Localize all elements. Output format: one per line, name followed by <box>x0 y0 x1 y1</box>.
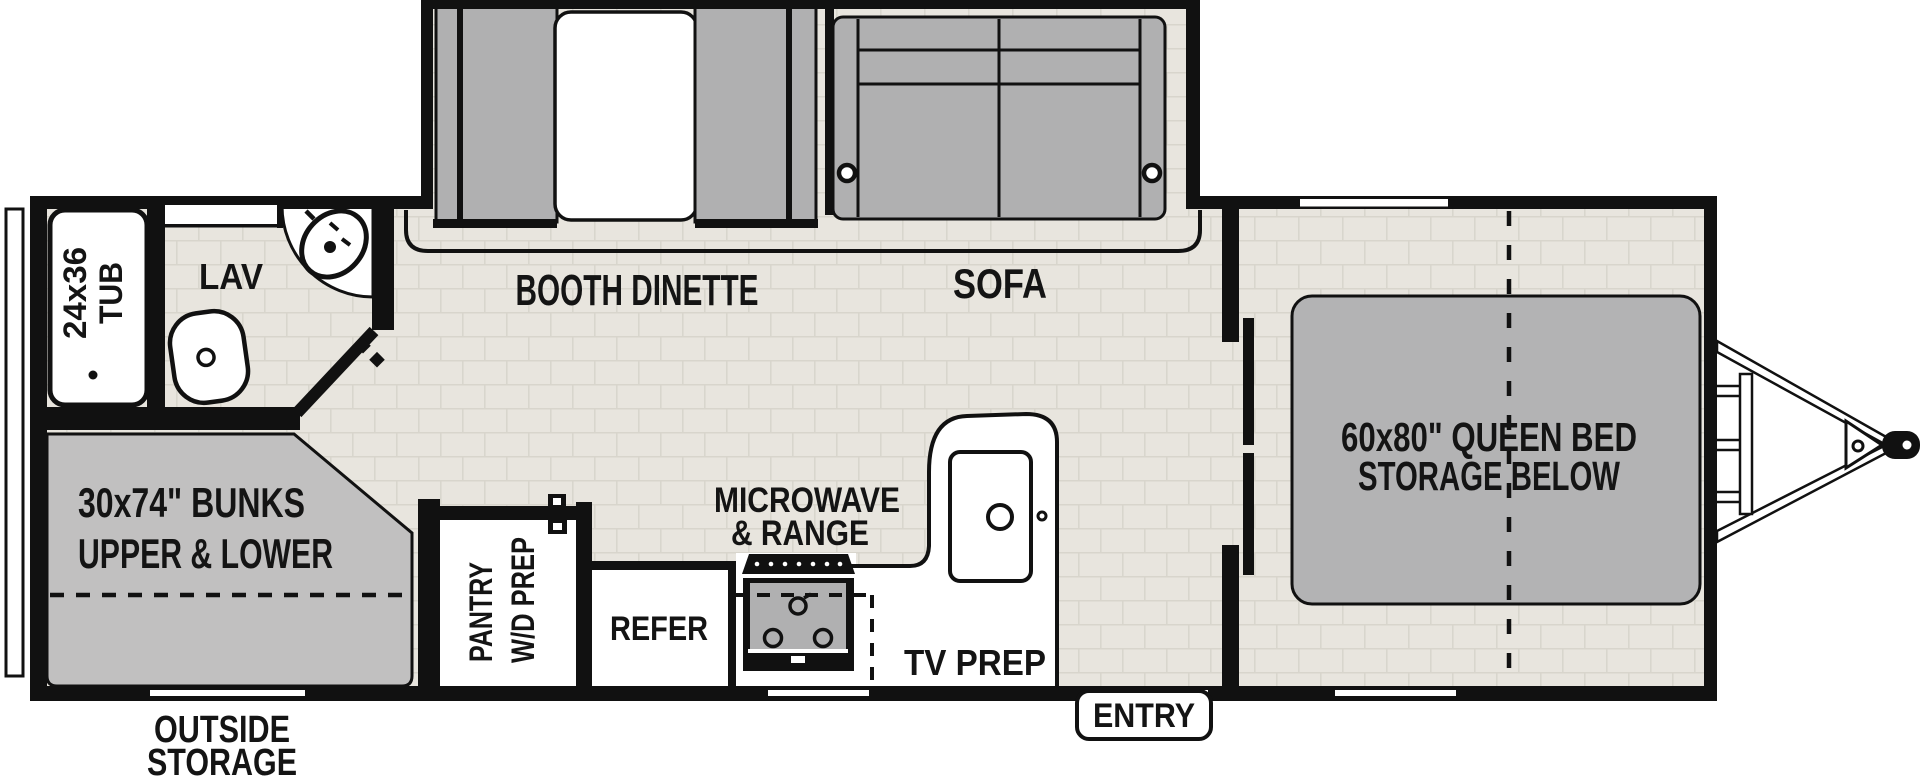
svg-text:STORAGE BELOW: STORAGE BELOW <box>1358 453 1620 499</box>
svg-text:UPPER & LOWER: UPPER & LOWER <box>78 530 333 577</box>
svg-text:PANTRY: PANTRY <box>463 562 499 662</box>
svg-text:TV PREP: TV PREP <box>904 642 1046 683</box>
svg-text:24x36: 24x36 <box>57 247 93 339</box>
svg-text:SOFA: SOFA <box>953 260 1047 307</box>
svg-text:W/D PREP: W/D PREP <box>505 537 541 663</box>
svg-text:LAV: LAV <box>199 256 263 297</box>
svg-text:& RANGE: & RANGE <box>731 514 869 553</box>
svg-text:TUB: TUB <box>93 262 129 324</box>
svg-text:REFER: REFER <box>610 610 708 648</box>
svg-text:BOOTH DINETTE: BOOTH DINETTE <box>516 266 759 315</box>
svg-text:STORAGE: STORAGE <box>147 742 297 780</box>
svg-text:ENTRY: ENTRY <box>1093 697 1195 735</box>
svg-text:30x74" BUNKS: 30x74" BUNKS <box>78 479 305 526</box>
